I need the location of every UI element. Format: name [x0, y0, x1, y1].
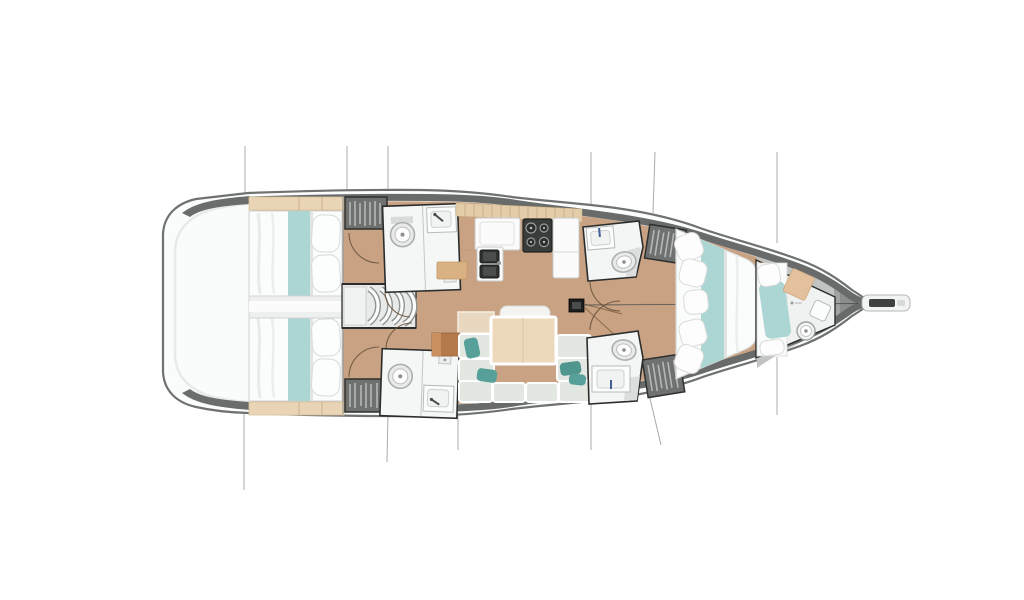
- shelf-strip: [249, 402, 344, 415]
- bed-runner-teal: [288, 211, 310, 296]
- head-fwd-bottom: [587, 331, 643, 404]
- engine-box-top: [249, 301, 342, 312]
- floorplan-canvas: [0, 0, 1024, 600]
- shelf-strip: [249, 197, 344, 210]
- head-aft-bottom: [380, 349, 459, 419]
- duvet-fold: [258, 213, 260, 294]
- galley-wood-cabinet: [437, 262, 467, 279]
- pillow: [311, 358, 341, 396]
- pillow: [311, 318, 341, 356]
- pillow: [311, 254, 341, 292]
- swim-platform: [166, 196, 248, 410]
- fitting-mark: [791, 302, 794, 305]
- aft-cabin-top: [249, 197, 344, 296]
- toilet: [388, 364, 413, 389]
- shower-drain: [439, 356, 451, 364]
- sink: [592, 366, 630, 392]
- aft-cabin-bottom: [249, 317, 344, 415]
- bow-berth-foot: [759, 338, 785, 356]
- toilet: [797, 322, 815, 340]
- toilet: [390, 222, 415, 247]
- guide-line: [653, 152, 655, 213]
- sink: [423, 385, 454, 412]
- yacht-floorplan: [0, 0, 1024, 600]
- hanging-locker-aft-top: [345, 197, 387, 229]
- sink: [586, 226, 615, 250]
- counter-right: [553, 218, 579, 278]
- bow-berth-pillow: [756, 262, 781, 287]
- duvet-fold: [258, 318, 260, 398]
- guide-line: [387, 414, 388, 462]
- chart-table-leaf: [432, 333, 441, 356]
- stair-landing: [344, 287, 366, 325]
- side-bench-wood: [458, 312, 494, 333]
- bed-runner-teal: [288, 317, 310, 401]
- sink: [427, 207, 457, 233]
- bowsprit: [862, 295, 910, 311]
- guide-line: [648, 390, 661, 445]
- pillow: [311, 214, 341, 252]
- duvet-fold: [272, 318, 274, 398]
- head-fwd-top: [583, 221, 643, 281]
- duvet-fold: [272, 213, 274, 294]
- stove: [523, 219, 552, 252]
